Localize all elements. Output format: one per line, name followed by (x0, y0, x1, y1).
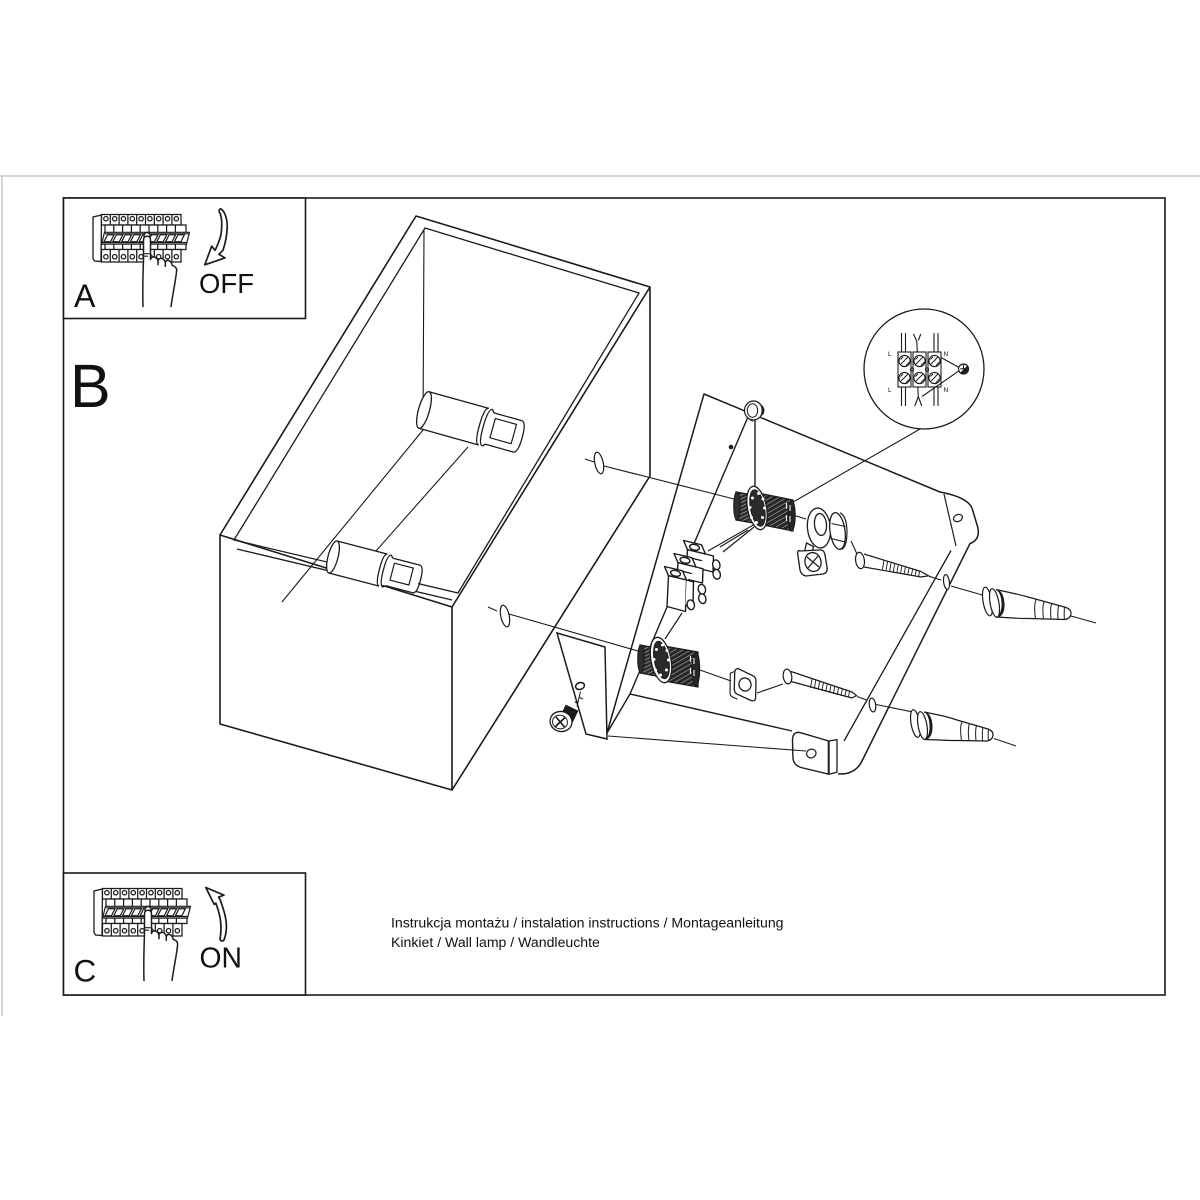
svg-text:N: N (944, 351, 949, 358)
svg-text:A: A (74, 278, 96, 314)
svg-text:B: B (70, 352, 111, 420)
svg-text:OFF: OFF (199, 268, 254, 299)
svg-text:C: C (74, 953, 97, 989)
svg-text:Instrukcja montażu / instalati: Instrukcja montażu / instalation instruc… (391, 915, 784, 931)
svg-text:Kinkiet / Wall lamp / Wandleuc: Kinkiet / Wall lamp / Wandleuchte (391, 934, 600, 950)
svg-text:ON: ON (200, 942, 242, 974)
svg-text:L: L (888, 387, 892, 394)
svg-text:N: N (944, 387, 949, 394)
svg-text:L: L (888, 351, 892, 358)
